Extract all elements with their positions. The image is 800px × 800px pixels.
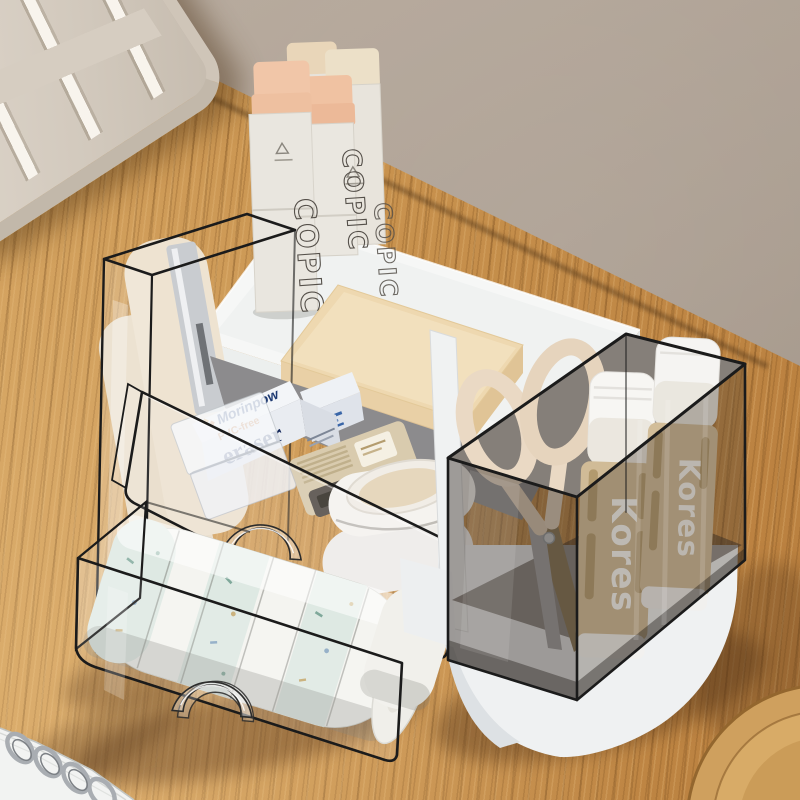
organizer-illustration: COPIC COPIC COPIC (0, 0, 800, 800)
scene: COPIC COPIC COPIC (0, 0, 800, 800)
wooden-coaster (687, 685, 800, 800)
right-section: Kores Kores (400, 330, 745, 757)
copic-markers: COPIC COPIC COPIC (244, 39, 404, 320)
drawer-front-sheen (104, 586, 128, 700)
spiral-notebook (0, 728, 134, 800)
